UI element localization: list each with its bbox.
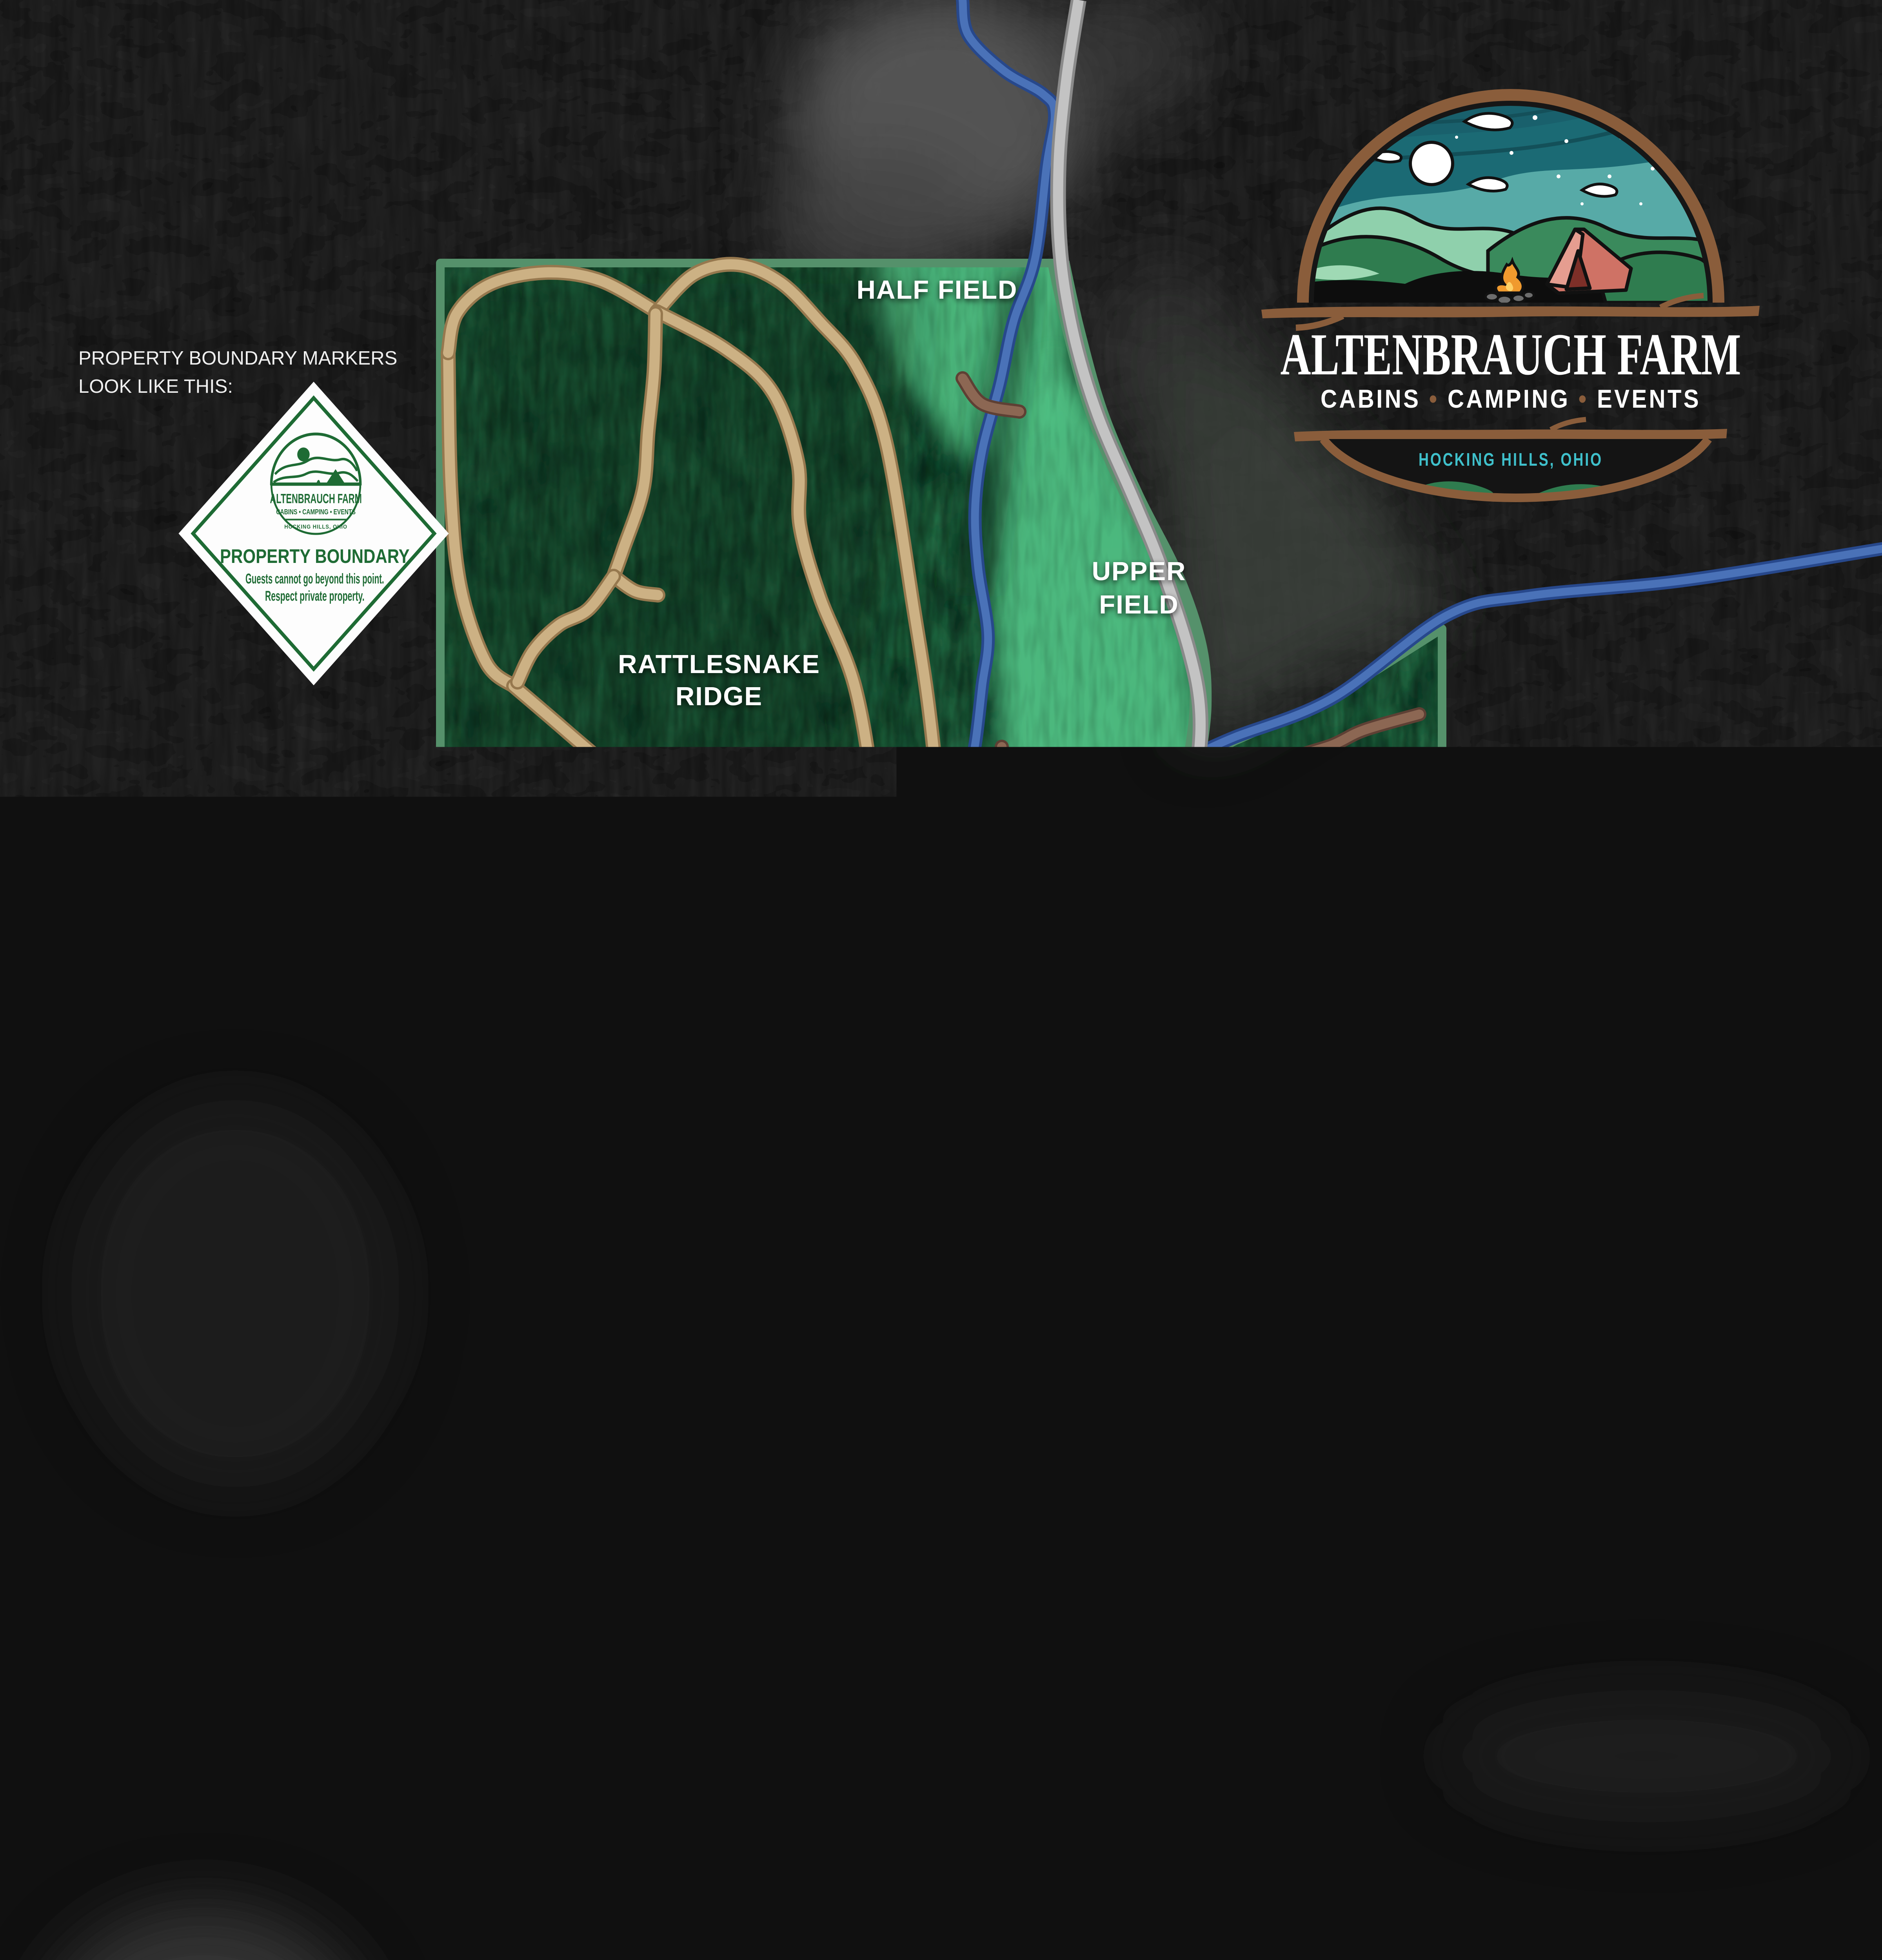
svg-text:UPPER: UPPER bbox=[1092, 557, 1186, 586]
svg-text:HOCKING HILLS, OHIO: HOCKING HILLS, OHIO bbox=[284, 523, 347, 530]
svg-text:PROPERTY BOUNDARY MARKERS: PROPERTY BOUNDARY MARKERS bbox=[78, 348, 397, 369]
svg-text:ALTENBRAUCH FARM: ALTENBRAUCH FARM bbox=[270, 491, 362, 506]
svg-text:BLACK BEAR: BLACK BEAR bbox=[1148, 1418, 1329, 1448]
svg-text:APPLEMAN: APPLEMAN bbox=[869, 1684, 983, 1705]
svg-text:RATTLESNAKE: RATTLESNAKE bbox=[618, 650, 820, 679]
svg-text:MIDDLE: MIDDLE bbox=[972, 1070, 1078, 1100]
svg-text:FIREWOOD RACK: FIREWOOD RACK bbox=[676, 1654, 840, 1675]
svg-text:RESIDENCE: RESIDENCE bbox=[867, 1702, 986, 1724]
svg-text:Guests cannot go beyond this p: Guests cannot go beyond this point. bbox=[245, 570, 384, 586]
svg-text:CHECK-IN KIOSK: CHECK-IN KIOSK bbox=[679, 1631, 837, 1652]
svg-text:61.75 ACRES: 61.75 ACRES bbox=[1332, 1892, 1459, 1914]
svg-text:Respect private property.: Respect private property. bbox=[265, 588, 365, 604]
svg-text:LOWER: LOWER bbox=[542, 1799, 643, 1828]
svg-text:HOCKING HILLS, OHIO: HOCKING HILLS, OHIO bbox=[1419, 449, 1603, 470]
svg-text:RIDGE: RIDGE bbox=[1195, 1459, 1282, 1489]
svg-text:FIELD: FIELD bbox=[1099, 590, 1179, 619]
svg-text:HONEYSUCKLE: HONEYSUCKLE bbox=[1146, 1791, 1304, 1813]
svg-text:CABINS • CAMPING • EVENTS: CABINS • CAMPING • EVENTS bbox=[1321, 384, 1701, 413]
svg-text:PROPERTY BOUNDARY: PROPERTY BOUNDARY bbox=[220, 546, 410, 568]
svg-text:FIELD: FIELD bbox=[985, 1103, 1065, 1133]
svg-text:LOOK LIKE THIS:: LOOK LIKE THIS: bbox=[78, 376, 233, 397]
svg-text:ALTENBRAUCH FARM: ALTENBRAUCH FARM bbox=[1281, 321, 1741, 387]
svg-text:FIELD: FIELD bbox=[553, 1835, 633, 1864]
svg-text:COTTAGE: COTTAGE bbox=[1175, 1814, 1275, 1836]
svg-text:CABINS • CAMPING • EVENTS: CABINS • CAMPING • EVENTS bbox=[276, 508, 356, 516]
svg-text:HALF FIELD: HALF FIELD bbox=[857, 275, 1018, 305]
svg-text:RIDGE: RIDGE bbox=[676, 682, 763, 711]
svg-text:POND: POND bbox=[620, 1738, 673, 1757]
